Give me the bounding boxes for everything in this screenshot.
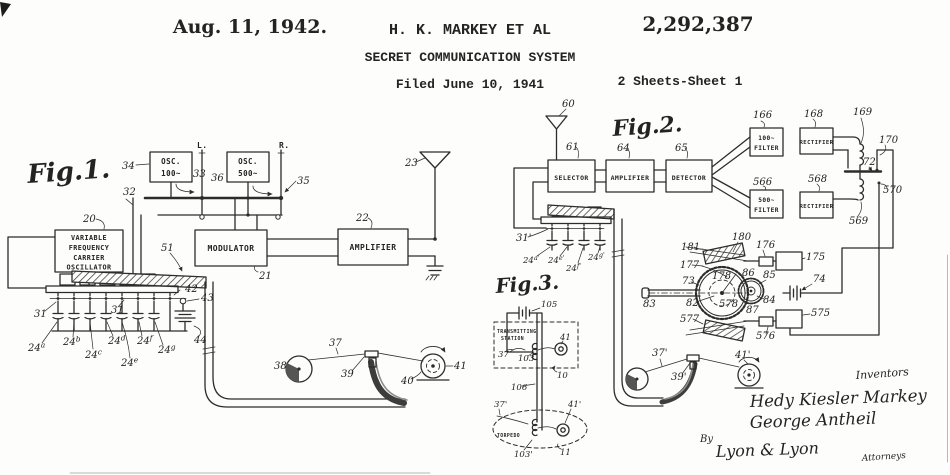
filter-100-label-2: FILTER	[754, 145, 779, 152]
inventors-caption: Inventors	[854, 365, 909, 382]
ref-40: 40	[400, 376, 414, 387]
wheel-41-hub	[559, 347, 563, 351]
ref-41: 41	[559, 333, 571, 343]
antenna-icon	[546, 116, 567, 129]
patent-number: 2,292,387	[642, 12, 753, 36]
ref-24gp: 24g'	[587, 251, 605, 263]
ref-578: 578	[719, 299, 738, 310]
ref-82: 82	[686, 298, 699, 309]
junction-dot	[246, 196, 249, 199]
motor-40	[417, 346, 449, 380]
battery-43	[174, 290, 195, 331]
ref-169: 169	[853, 107, 873, 118]
wire	[712, 185, 750, 208]
ref-37: 37	[329, 338, 342, 349]
relay-assembly	[783, 137, 893, 335]
ref-42: 42	[184, 284, 198, 295]
ref-24d: 24d	[107, 334, 126, 348]
filed-date: Filed June 10, 1941	[396, 77, 544, 92]
contacts	[551, 224, 602, 241]
ref-178: 178	[712, 271, 731, 282]
ref-575: 575	[811, 308, 830, 319]
ref-51: 51	[161, 243, 174, 254]
ref-60: 60	[562, 99, 575, 110]
fig2-title: Fig.2.	[611, 111, 684, 142]
rotation-arrow	[421, 346, 445, 352]
figure-1: Fig.1. OSC. 100~ OSC. 500~ L. R.	[8, 141, 467, 407]
component-576	[759, 317, 773, 326]
junction-dot	[246, 213, 249, 216]
clamp-39	[365, 351, 378, 357]
leader	[537, 247, 550, 256]
ref-31a: 31	[34, 309, 47, 320]
wire	[530, 313, 543, 344]
leader	[578, 248, 583, 263]
terminal-contact	[200, 215, 204, 219]
worm-top	[703, 243, 745, 264]
tape-37	[308, 354, 365, 360]
battery-105	[519, 307, 530, 319]
pulley-axle	[297, 367, 300, 370]
ref-43: 43	[200, 293, 214, 304]
leader	[170, 253, 182, 271]
ref-176: 176	[756, 240, 776, 251]
wheel-41	[555, 343, 567, 355]
tape-transport	[203, 282, 449, 407]
osc-500-label-1: OSC.	[238, 157, 258, 166]
coil-569	[860, 179, 864, 200]
tape-to-motor	[699, 358, 739, 367]
ref-20: 20	[82, 214, 96, 225]
leader	[96, 219, 104, 229]
wire	[712, 177, 750, 198]
ref-106: 106	[511, 383, 528, 393]
leader	[107, 322, 113, 336]
leader	[524, 440, 532, 450]
attorneys-caption: Attorneys	[861, 451, 907, 464]
ref-38: 38	[274, 361, 287, 372]
ref-24ep: 24e'	[547, 254, 565, 266]
leader	[817, 184, 820, 191]
attorney-signature: Lyon & Lyon	[714, 438, 819, 461]
ref-37: 37	[498, 350, 509, 360]
pulley-axle	[636, 378, 639, 381]
ref-181: 181	[681, 242, 700, 253]
ref-41: 41	[453, 361, 467, 372]
patent-title: SECRET COMMUNICATION SYSTEM	[365, 50, 576, 65]
leader	[254, 266, 258, 272]
vfco-label-4: OSCILLATOR	[67, 264, 112, 272]
osc-100-label-1: OSC.	[161, 157, 181, 166]
inventor-signature-2: George Antheil	[749, 409, 876, 432]
ref-569: 569	[849, 216, 869, 227]
ref-86: 86	[742, 268, 755, 279]
component-175	[776, 252, 802, 270]
patent-drawing: Aug. 11, 1942. H. K. MARKEY ET AL 2,292,…	[0, 0, 950, 475]
pinion-axle	[750, 290, 753, 293]
ref-31b: 31	[111, 305, 124, 316]
solenoid-103p	[532, 420, 537, 436]
leader	[42, 322, 57, 343]
ref-180: 180	[732, 232, 752, 243]
osc-500-label-2: 500~	[238, 169, 258, 178]
ref-44: 44	[193, 335, 207, 346]
pulley-shade	[286, 363, 299, 382]
scan-mark	[0, 2, 11, 17]
antenna-icon	[420, 152, 450, 168]
vfco-label-3: CARRIER	[73, 254, 105, 262]
rectifier-top-label: RECTIFIER	[800, 140, 834, 146]
worm-bottom	[703, 320, 745, 341]
lever-to-wheel	[538, 427, 556, 429]
tape-band	[662, 364, 695, 402]
ref-576: 576	[756, 331, 776, 342]
ref-175: 175	[806, 252, 825, 263]
ref-84: 84	[763, 295, 776, 306]
leader	[803, 314, 810, 315]
leader	[813, 119, 816, 127]
ref-568: 568	[808, 174, 827, 185]
ref-72: 72	[863, 157, 876, 168]
leader	[861, 118, 864, 143]
ref-37p: 37'	[494, 400, 507, 410]
patent-sheet: Aug. 11, 1942. H. K. MARKEY ET AL 2,292,…	[0, 0, 950, 475]
leader	[660, 359, 662, 366]
ref-87: 87	[746, 305, 759, 316]
modulator-label: MODULATOR	[208, 244, 255, 253]
switch-32	[126, 199, 133, 205]
ref-168: 168	[804, 109, 823, 120]
leader	[857, 202, 862, 217]
ref-41p: 41'	[567, 400, 581, 410]
inventor-signature-1: Hedy Kiesler Markey	[748, 386, 927, 411]
signature-block: Inventors Hedy Kiesler Markey George Ant…	[699, 365, 928, 464]
ref-10: 10	[557, 371, 568, 381]
figure-2: Fig.2. SELECTOR AMPLIFIER DETECTOR 100~ …	[514, 99, 903, 406]
battery-74	[783, 286, 801, 300]
ref-166: 166	[753, 110, 773, 121]
tape-37p-curve	[497, 416, 528, 424]
patent-date: Aug. 11, 1942.	[172, 16, 327, 38]
osc-100-label-2: 100~	[161, 169, 181, 178]
leader	[565, 409, 571, 423]
vfco-label-1: VARIABLE	[71, 234, 107, 242]
component-575	[776, 310, 802, 328]
ref-170: 170	[879, 135, 899, 146]
ref-31p: 31'	[516, 233, 531, 244]
filter-500-label-1: 500~	[758, 197, 775, 204]
fig2-refs: 60 61 64 65 166 168 169 170 72 566 568 5…	[516, 99, 903, 383]
by-label: By	[699, 434, 713, 445]
tape	[645, 359, 687, 372]
ref-34: 34	[122, 161, 135, 172]
leader	[559, 109, 566, 116]
ref-570: 570	[883, 185, 903, 196]
ref-24fp: 24f'	[565, 262, 581, 274]
fig1-title: Fig.1.	[25, 154, 111, 190]
rectifier-bottom-label: RECTIFIER	[800, 204, 834, 210]
ref-83: 83	[643, 299, 656, 310]
junction-dot	[200, 196, 204, 200]
gear-mechanism	[642, 243, 802, 341]
terminal-l-label: L.	[197, 141, 207, 150]
ref-85: 85	[763, 270, 776, 281]
ref-24f: 24f	[136, 334, 154, 348]
ref-41p: 41'	[734, 350, 750, 361]
ref-36: 36	[211, 173, 224, 184]
torpedo-outline	[493, 410, 587, 448]
leader	[285, 181, 296, 192]
arrow-35	[253, 186, 272, 194]
tube-wall	[205, 282, 405, 407]
leader	[802, 284, 812, 290]
ref-103p: 103'	[514, 450, 533, 460]
ref-24g: 24g	[157, 343, 176, 357]
leader	[73, 322, 74, 337]
wire	[833, 199, 858, 200]
motor	[735, 357, 763, 388]
selector-label: SELECTOR	[554, 174, 589, 182]
fig3-title: Fig.3.	[494, 270, 560, 298]
leader	[155, 322, 163, 345]
ref-11: 11	[560, 448, 571, 458]
ref-21: 21	[258, 271, 272, 282]
clamp	[687, 355, 699, 361]
ref-566: 566	[753, 177, 773, 188]
leader	[136, 164, 149, 165]
wheel-41p	[557, 424, 569, 436]
amplifier2-label: AMPLIFIER	[611, 174, 650, 182]
junction-dot	[279, 196, 283, 200]
leader	[761, 121, 765, 127]
pulley-shade	[626, 374, 637, 390]
leader	[187, 299, 199, 301]
junction-dot	[433, 237, 437, 241]
sheet-number: 2 Sheets-Sheet 1	[618, 74, 743, 89]
leader	[352, 357, 364, 371]
filter-100-label-1: 100~	[758, 135, 775, 142]
ref-105: 105	[541, 300, 557, 310]
ref-73: 73	[682, 276, 695, 287]
header: Aug. 11, 1942. H. K. MARKEY ET AL 2,292,…	[172, 12, 754, 92]
capacitors	[53, 314, 159, 332]
ref-577: 577	[680, 314, 700, 325]
contact-570-dot	[878, 182, 881, 185]
ref-23: 23	[404, 158, 418, 169]
ref-35: 35	[297, 176, 310, 187]
key-bar	[46, 286, 178, 293]
ref-32: 32	[123, 187, 136, 198]
patent-author: H. K. MARKEY ET AL	[389, 22, 551, 39]
leader	[139, 322, 142, 336]
capacitors	[547, 241, 605, 251]
arrow-33	[176, 184, 194, 192]
leader	[532, 308, 540, 311]
transmitting-station-label-2: STATION	[501, 336, 524, 342]
ref-74: 74	[813, 274, 826, 285]
ref-37p: 37'	[652, 348, 667, 359]
tape-to-motor	[378, 353, 423, 361]
leader	[90, 322, 93, 349]
leader	[45, 302, 56, 311]
figure-3: Fig.3. TRANSMITTING STATION TORPEDO 105 …	[493, 270, 587, 460]
component-176	[759, 257, 773, 266]
terminal-contact	[276, 215, 280, 219]
torpedo-label: TORPEDO	[497, 433, 520, 439]
ground-icon	[426, 256, 443, 280]
lever-to-wheel	[538, 348, 555, 350]
wire	[533, 182, 548, 219]
amplifier-label: AMPLIFIER	[350, 243, 397, 252]
ref-24e: 24e	[120, 356, 139, 370]
transmitting-station-label-1: TRANSMITTING	[497, 329, 536, 335]
ref-103: 103	[518, 354, 534, 364]
detector-label: DETECTOR	[672, 174, 707, 182]
terminal-r-label: R.	[279, 141, 289, 150]
ref-24c: 24c	[84, 348, 103, 362]
filter-500-label-2: FILTER	[754, 207, 779, 214]
ref-33: 33	[193, 169, 206, 180]
ref-22: 22	[355, 213, 369, 224]
ref-24b: 24b	[62, 335, 81, 349]
ref-39p: 39'	[671, 372, 686, 383]
wire-loop-left	[8, 237, 55, 288]
wheel-41p-hub	[561, 428, 565, 432]
wire	[833, 137, 860, 144]
vfco-label-2: FREQUENCY	[69, 244, 110, 252]
wire	[514, 168, 548, 228]
